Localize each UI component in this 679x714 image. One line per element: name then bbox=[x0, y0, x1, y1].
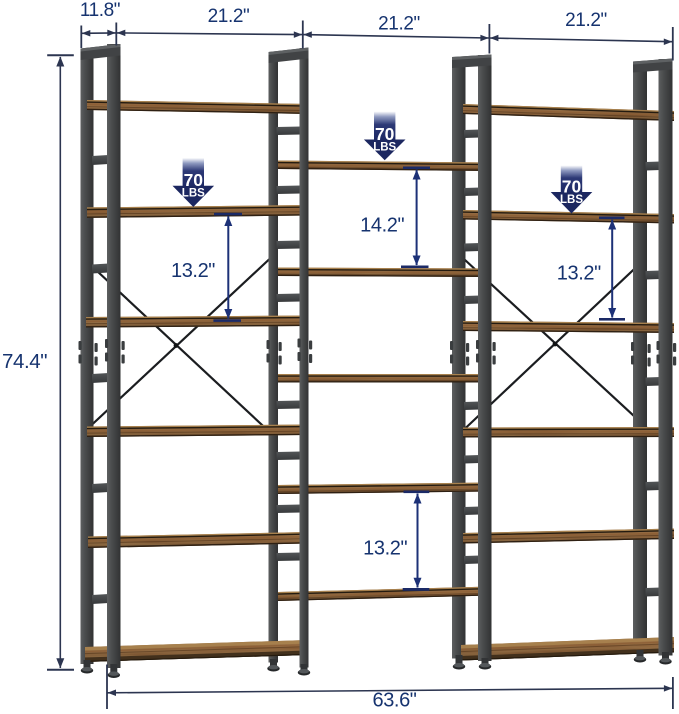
svg-text:LBS: LBS bbox=[560, 194, 583, 206]
svg-text:11.8": 11.8" bbox=[80, 0, 120, 21]
svg-text:LBS: LBS bbox=[373, 142, 396, 154]
svg-text:74.4": 74.4" bbox=[2, 350, 47, 373]
svg-text:63.6": 63.6" bbox=[372, 690, 416, 710]
svg-text:13.2": 13.2" bbox=[557, 263, 601, 285]
svg-text:14.2": 14.2" bbox=[360, 215, 404, 237]
svg-text:21.2": 21.2" bbox=[565, 10, 607, 31]
svg-text:LBS: LBS bbox=[182, 188, 205, 200]
svg-text:13.2": 13.2" bbox=[363, 538, 407, 560]
svg-text:21.2": 21.2" bbox=[208, 6, 250, 27]
svg-text:13.2": 13.2" bbox=[171, 260, 215, 282]
svg-text:21.2": 21.2" bbox=[378, 14, 420, 35]
